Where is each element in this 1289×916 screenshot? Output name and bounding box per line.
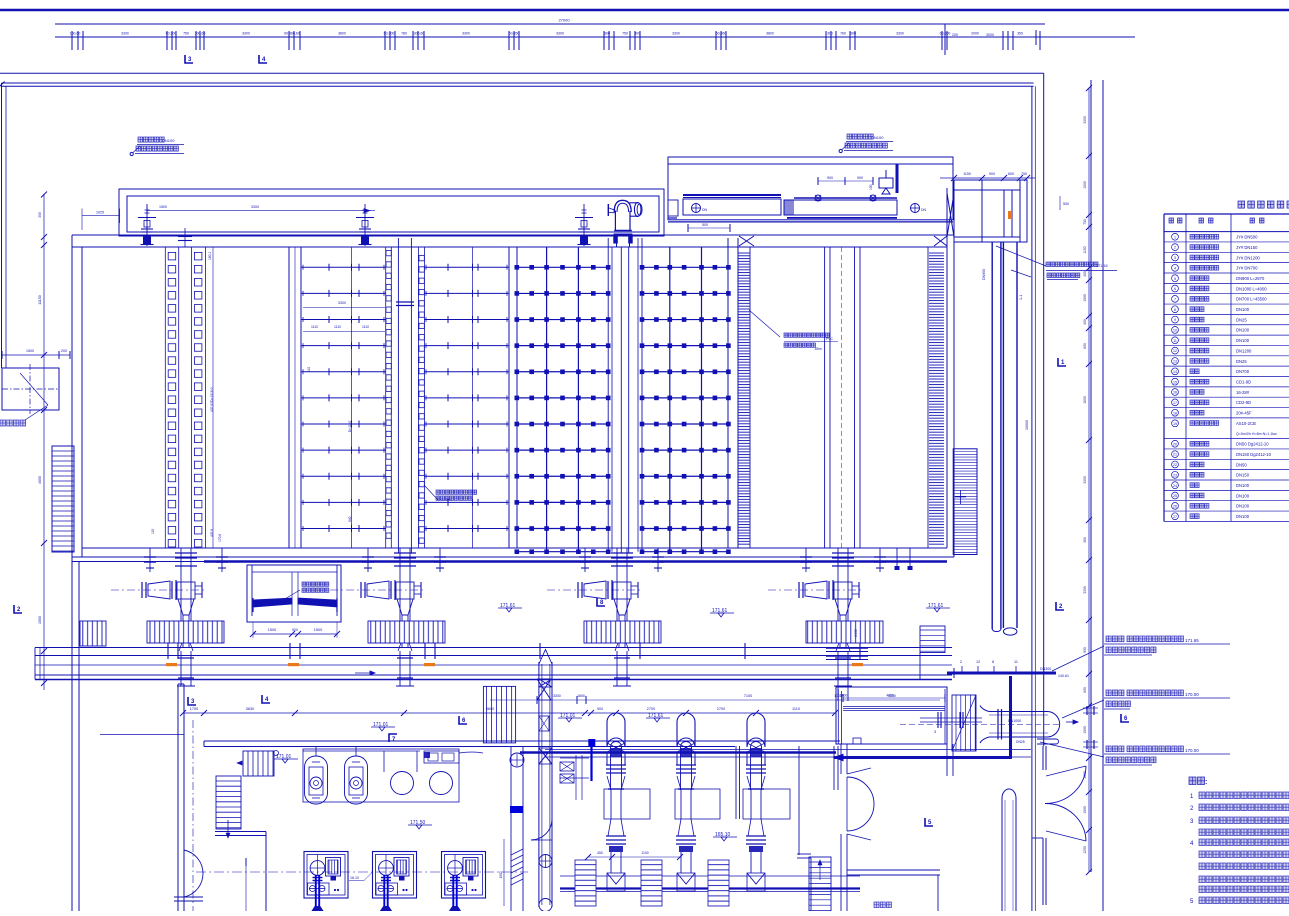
svg-text:1500: 1500 xyxy=(1083,806,1087,814)
svg-text:180.1: 180.1 xyxy=(208,252,212,260)
svg-text:15: 15 xyxy=(1173,380,1177,384)
svg-text:DN25: DN25 xyxy=(1016,740,1025,744)
svg-text:1110: 1110 xyxy=(311,325,318,329)
svg-text:3300: 3300 xyxy=(338,301,346,305)
svg-text:10: 10 xyxy=(1173,329,1177,333)
svg-text:171.16: 171.16 xyxy=(1096,264,1108,268)
svg-text:DN150: DN150 xyxy=(1236,473,1250,478)
svg-text:24: 24 xyxy=(1173,484,1177,488)
svg-text:D=1110: D=1110 xyxy=(348,421,352,432)
svg-text:940: 940 xyxy=(348,516,352,522)
svg-text:1110: 1110 xyxy=(362,325,369,329)
svg-text:110: 110 xyxy=(307,367,311,372)
svg-text:3300: 3300 xyxy=(1083,476,1087,484)
svg-text:300: 300 xyxy=(634,32,640,36)
svg-text:9: 9 xyxy=(1174,318,1176,322)
svg-text:60,360,60: 60,360,60 xyxy=(284,32,300,36)
svg-text:6: 6 xyxy=(1174,287,1176,291)
svg-text:170.00: 170.00 xyxy=(1185,692,1199,697)
svg-text:3: 3 xyxy=(1174,256,1176,260)
svg-text:23: 23 xyxy=(1173,473,1177,477)
svg-text:Q=5m3/h H=8m N=1.1kw: Q=5m3/h H=8m N=1.1kw xyxy=(1236,432,1277,436)
svg-text:22: 22 xyxy=(1173,463,1177,467)
svg-text:DN100: DN100 xyxy=(1236,504,1250,509)
svg-text:DN50: DN50 xyxy=(1236,462,1247,467)
svg-text:3300: 3300 xyxy=(242,32,250,36)
svg-text:26: 26 xyxy=(1173,504,1177,508)
svg-text:DN700: DN700 xyxy=(1236,369,1250,374)
svg-text:350: 350 xyxy=(1017,32,1023,36)
svg-text:900: 900 xyxy=(1083,647,1087,653)
svg-text:150,60: 150,60 xyxy=(70,32,81,36)
svg-text:780: 780 xyxy=(401,32,407,36)
svg-text:1500: 1500 xyxy=(26,349,34,353)
svg-text:1100: 1100 xyxy=(641,851,648,855)
svg-text:11: 11 xyxy=(1014,660,1018,664)
svg-text:600: 600 xyxy=(1008,172,1014,176)
svg-text:.85m: .85m xyxy=(814,347,822,351)
svg-text:750: 750 xyxy=(1083,219,1087,225)
svg-text:17: 17 xyxy=(1173,401,1177,405)
svg-text:3800: 3800 xyxy=(338,32,346,36)
svg-text:407.62D=1016.0: 407.62D=1016.0 xyxy=(210,387,214,412)
svg-text:DN: DN xyxy=(702,208,708,212)
svg-text:DN50 Dg2412-10: DN50 Dg2412-10 xyxy=(1236,442,1269,447)
svg-text:18: 18 xyxy=(1173,411,1177,415)
svg-text:1-1: 1-1 xyxy=(1019,295,1023,300)
svg-text:170.00: 170.00 xyxy=(1185,748,1199,753)
svg-text:450: 450 xyxy=(597,851,603,855)
svg-text:CD1-9D: CD1-9D xyxy=(1236,379,1251,384)
svg-text:DN1000: DN1000 xyxy=(1008,719,1021,723)
svg-text:20: 20 xyxy=(1173,442,1177,446)
svg-text:300: 300 xyxy=(850,32,856,36)
svg-text:DN100: DN100 xyxy=(1236,307,1250,312)
svg-text:DN: DN xyxy=(921,208,927,212)
svg-text:900: 900 xyxy=(989,172,995,176)
svg-text:4650: 4650 xyxy=(38,476,42,484)
svg-text:500: 500 xyxy=(292,628,298,632)
svg-text:1650: 1650 xyxy=(577,694,585,698)
svg-text:21: 21 xyxy=(1173,453,1177,457)
svg-text:DN100: DN100 xyxy=(1236,493,1250,498)
svg-text:3300: 3300 xyxy=(896,32,904,36)
svg-text:1110: 1110 xyxy=(334,325,341,329)
svg-text:450: 450 xyxy=(1083,271,1087,277)
svg-text:3300: 3300 xyxy=(462,32,470,36)
svg-text:16-28#: 16-28# xyxy=(1236,390,1250,395)
svg-text:900: 900 xyxy=(857,176,863,180)
svg-text:JY# DN150: JY# DN150 xyxy=(1236,245,1258,250)
svg-text:800: 800 xyxy=(1083,687,1087,693)
svg-text:3300: 3300 xyxy=(672,32,680,36)
svg-text:AS10-2CB: AS10-2CB xyxy=(1236,421,1256,426)
svg-text:CD2-9D: CD2-9D xyxy=(1236,400,1251,405)
svg-text:12: 12 xyxy=(1173,349,1177,353)
svg-text:200: 200 xyxy=(61,349,67,353)
svg-text:110: 110 xyxy=(151,529,155,534)
svg-text:DN100: DN100 xyxy=(1236,328,1250,333)
svg-text:25: 25 xyxy=(1173,494,1177,498)
svg-text:450: 450 xyxy=(1083,319,1087,325)
svg-text:JY# DN500: JY# DN500 xyxy=(1236,235,1258,240)
svg-text:500: 500 xyxy=(597,707,603,711)
svg-text:JY# DN700: JY# DN700 xyxy=(1236,266,1258,271)
svg-text:300: 300 xyxy=(604,32,610,36)
svg-text:8: 8 xyxy=(992,660,994,664)
svg-text:11: 11 xyxy=(1173,339,1177,343)
svg-text:3300: 3300 xyxy=(1083,116,1087,124)
svg-text:60,350: 60,350 xyxy=(509,32,520,36)
svg-text:12: 12 xyxy=(976,660,980,664)
svg-text:600: 600 xyxy=(1083,343,1087,349)
svg-text:1: 1 xyxy=(1174,235,1176,239)
svg-text:1150: 1150 xyxy=(1083,246,1087,253)
svg-text:380: 380 xyxy=(1083,537,1087,543)
svg-text:1000: 1000 xyxy=(840,694,848,698)
svg-text:170.6: 170.6 xyxy=(218,534,222,542)
svg-text:1800: 1800 xyxy=(1083,396,1087,404)
svg-text:7: 7 xyxy=(1174,297,1176,301)
svg-text:PVC: PVC xyxy=(826,337,834,341)
svg-text:DN900 L=2970: DN900 L=2970 xyxy=(1236,276,1265,281)
svg-text:4000: 4000 xyxy=(886,694,894,698)
svg-text:7100: 7100 xyxy=(744,694,752,698)
svg-text:DN100: DN100 xyxy=(871,135,884,140)
svg-text:DN100: DN100 xyxy=(1236,514,1250,519)
svg-text:14: 14 xyxy=(1173,370,1177,374)
svg-text:760: 760 xyxy=(840,32,846,36)
svg-text:3300: 3300 xyxy=(553,694,561,698)
svg-text:DN700 L=43500: DN700 L=43500 xyxy=(1236,297,1267,302)
svg-text:3300: 3300 xyxy=(556,32,564,36)
svg-text:1000: 1000 xyxy=(1083,771,1087,779)
svg-text:20#-45F: 20#-45F xyxy=(1236,411,1252,416)
svg-text:DN1200: DN1200 xyxy=(1236,348,1252,353)
svg-text:1500: 1500 xyxy=(314,628,322,632)
svg-text:DN25: DN25 xyxy=(1236,317,1247,322)
svg-text:C430: C430 xyxy=(854,629,858,637)
svg-text:1110: 1110 xyxy=(792,707,800,711)
svg-text:60,360: 60,360 xyxy=(716,32,727,36)
svg-text:3300: 3300 xyxy=(251,205,259,209)
svg-text:2700: 2700 xyxy=(647,707,655,711)
svg-text:300: 300 xyxy=(38,212,42,218)
svg-text:4: 4 xyxy=(1174,266,1176,270)
svg-text:60,300: 60,300 xyxy=(166,32,177,36)
svg-text:3800: 3800 xyxy=(766,32,774,36)
svg-text:2: 2 xyxy=(960,660,962,664)
svg-text:60,300: 60,300 xyxy=(384,32,395,36)
svg-text:1500: 1500 xyxy=(1083,726,1087,734)
svg-text:171.65: 171.65 xyxy=(1185,638,1199,643)
svg-text:3630: 3630 xyxy=(246,707,254,711)
svg-text:DN300: DN300 xyxy=(1040,667,1051,671)
svg-text:407.6: 407.6 xyxy=(210,529,214,537)
svg-text:3300: 3300 xyxy=(121,32,129,36)
svg-text:8600: 8600 xyxy=(486,707,494,711)
svg-text:1500: 1500 xyxy=(268,628,276,632)
svg-text:19: 19 xyxy=(1173,422,1177,426)
svg-text:300,60: 300,60 xyxy=(414,32,425,36)
svg-text:500: 500 xyxy=(702,223,708,227)
svg-text:8: 8 xyxy=(1174,308,1176,312)
svg-text:1500: 1500 xyxy=(159,205,167,209)
svg-text:DN900: DN900 xyxy=(982,269,986,280)
svg-text:1500: 1500 xyxy=(1083,181,1087,189)
svg-text:27000: 27000 xyxy=(558,18,570,23)
svg-text:750: 750 xyxy=(183,32,189,36)
svg-text:DN150 Dg2412-10: DN150 Dg2412-10 xyxy=(1236,452,1272,457)
svg-text:16: 16 xyxy=(1173,391,1177,395)
svg-text:JY# DN1200: JY# DN1200 xyxy=(1236,255,1260,260)
svg-text:1150: 1150 xyxy=(963,172,971,176)
svg-text:DN25: DN25 xyxy=(1236,359,1247,364)
svg-text:DN100: DN100 xyxy=(1236,338,1250,343)
svg-text:13: 13 xyxy=(1173,360,1177,364)
svg-text:500: 500 xyxy=(1063,202,1069,206)
svg-text:16.10: 16.10 xyxy=(350,876,359,880)
svg-text:2: 2 xyxy=(1174,246,1176,250)
svg-text:750: 750 xyxy=(1021,172,1027,176)
svg-text:10000: 10000 xyxy=(1025,420,1029,430)
svg-text:200: 200 xyxy=(952,33,958,37)
svg-text:1025: 1025 xyxy=(96,211,104,215)
svg-text:150: 150 xyxy=(869,184,873,190)
svg-text:140.61: 140.61 xyxy=(1058,674,1069,678)
svg-text:1500: 1500 xyxy=(1083,294,1087,302)
svg-text:11150: 11150 xyxy=(38,295,42,304)
svg-text:2000: 2000 xyxy=(971,32,979,36)
svg-text:900: 900 xyxy=(827,176,833,180)
svg-text:3000: 3000 xyxy=(986,33,994,37)
svg-text:DN100: DN100 xyxy=(162,138,175,143)
svg-text:750: 750 xyxy=(622,32,628,36)
svg-text:300: 300 xyxy=(827,32,833,36)
svg-text:27: 27 xyxy=(1173,515,1177,519)
svg-text:2700: 2700 xyxy=(717,707,725,711)
svg-text:300,60: 300,60 xyxy=(195,32,206,36)
svg-text:DN1000 L=4000: DN1000 L=4000 xyxy=(1236,286,1267,291)
svg-text:DN100: DN100 xyxy=(1236,483,1250,488)
svg-text:1500: 1500 xyxy=(38,616,42,624)
svg-text:1500: 1500 xyxy=(499,871,503,878)
svg-text:5: 5 xyxy=(1174,277,1176,281)
svg-text:3: 3 xyxy=(934,730,936,734)
svg-text:1700: 1700 xyxy=(190,707,198,711)
svg-text:3300: 3300 xyxy=(1083,586,1087,594)
svg-text:1200: 1200 xyxy=(1083,846,1087,854)
svg-text::: : xyxy=(1205,779,1207,786)
